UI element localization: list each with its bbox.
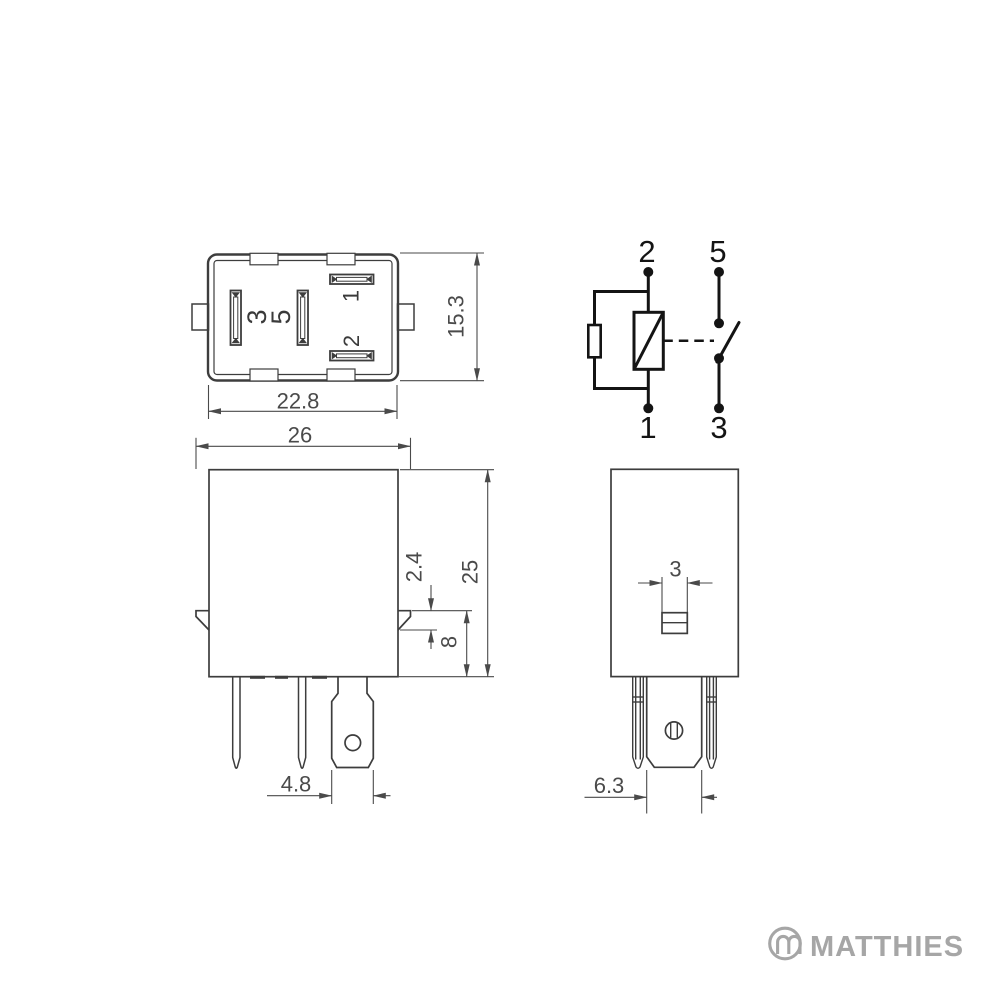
- dim-flange-step: 2.4: [400, 552, 437, 649]
- switch-fixed-contact-dot: [714, 318, 724, 328]
- front-view-pin-thin-middle: [299, 677, 306, 768]
- pin2-label: 2: [339, 335, 364, 347]
- pin5-label: 5: [266, 309, 296, 324]
- base-slot-mark: [312, 676, 327, 679]
- front-view-left-flange: [196, 611, 209, 630]
- terminal-slot-pin1: [330, 275, 374, 285]
- logo-wordmark: MATTHIES: [810, 931, 964, 963]
- dim-text: 15.3: [444, 295, 469, 338]
- dim-side-tab-width: 3: [638, 557, 713, 613]
- dim-text: 25: [458, 560, 483, 584]
- dim-text: 2.4: [402, 552, 427, 583]
- front-view-pin-thin-left: [233, 677, 240, 768]
- side-view-pin-thin-left: [633, 677, 644, 769]
- dim-text: 26: [288, 423, 312, 448]
- terminal-slot-pin5: [298, 291, 309, 346]
- front-view-right-flange: [398, 611, 411, 630]
- dim-blade-width-side: 6.3: [585, 770, 718, 814]
- dim-text: 6.3: [594, 773, 625, 798]
- side-view-blade-hole: [665, 722, 682, 739]
- front-view: 26 25 8 2.4 4.8: [196, 423, 494, 805]
- terminal-dot-1: [643, 403, 653, 413]
- schematic-terminal-2-label: 2: [638, 234, 655, 269]
- base-slot-mark: [250, 676, 265, 679]
- bottom-view: 3 5 1 2 22.8 15.3: [192, 253, 484, 419]
- front-view-body: [209, 470, 398, 677]
- dim-text: 8: [437, 636, 462, 648]
- schematic-terminal-5-label: 5: [709, 234, 726, 269]
- dim-text: 22.8: [277, 389, 320, 414]
- bottom-view-housing-outline: [208, 255, 398, 381]
- relay-technical-drawing: 3 5 1 2 22.8 15.3 2 5 1 3: [0, 0, 1000, 1000]
- front-view-blade-pin: [332, 677, 374, 768]
- dim-bottom-view-width: 22.8: [209, 385, 398, 419]
- brand-logo: MATTHIES: [770, 928, 964, 963]
- schematic-terminal-1-label: 1: [639, 410, 656, 445]
- side-view-pin-thin-right: [707, 677, 717, 769]
- base-slot-mark: [275, 676, 288, 679]
- relay-datasheet-drawing: 3 5 1 2 22.8 15.3 2 5 1 3: [0, 0, 1000, 1000]
- bottom-view-bottom-notch-right: [327, 369, 355, 381]
- dim-text: 3: [669, 557, 681, 582]
- side-view: 3 6.3: [585, 469, 739, 813]
- bottom-view-top-notch-right: [327, 253, 355, 264]
- bottom-view-left-mounting-tab: [192, 304, 209, 330]
- bottom-view-bottom-notch-left: [250, 369, 278, 381]
- dim-front-view-width: 26: [196, 423, 411, 470]
- dim-flange-to-base: 8: [412, 611, 472, 677]
- resistor-symbol: [588, 325, 600, 357]
- logo-m-circle-icon: [770, 928, 801, 959]
- terminal-slot-pin2: [330, 351, 374, 361]
- schematic-terminal-3-label: 3: [710, 410, 727, 445]
- bottom-view-top-notch-left: [250, 253, 278, 264]
- bottom-view-right-mounting-tab: [398, 304, 415, 330]
- pin1-label: 1: [339, 290, 364, 302]
- terminal-dot-3: [714, 403, 724, 413]
- circuit-schematic: 2 5 1 3: [588, 234, 739, 445]
- terminal-slot-pin3: [231, 291, 242, 346]
- blade-pin-hole: [345, 735, 361, 751]
- dim-blade-width-front: 4.8: [267, 770, 391, 804]
- dim-bottom-view-height: 15.3: [400, 253, 484, 381]
- dim-text: 4.8: [281, 772, 312, 797]
